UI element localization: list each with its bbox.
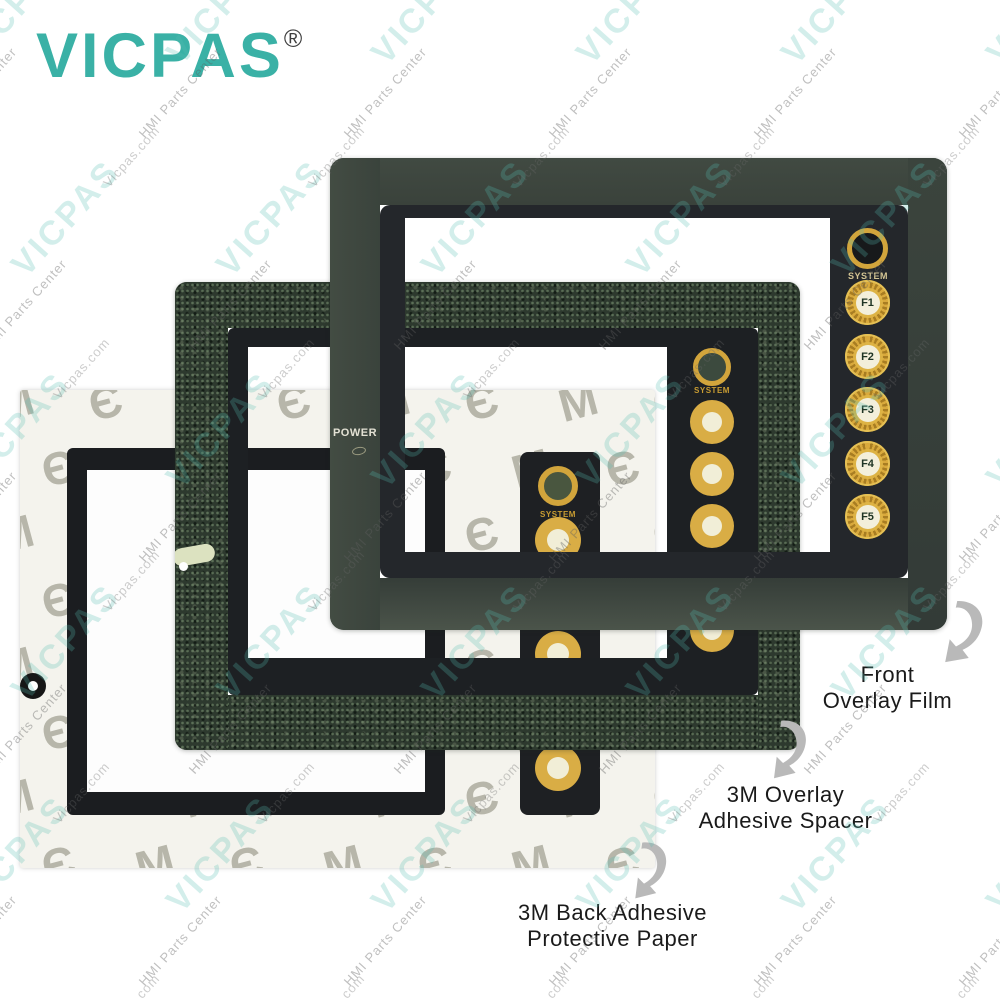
front-frame-right bbox=[908, 158, 947, 630]
watermark-vicpas: VICPAS bbox=[979, 365, 1000, 497]
label-adhesive-spacer: 3M Overlay Adhesive Spacer bbox=[683, 782, 888, 834]
back-paper-key-circle bbox=[535, 745, 581, 791]
function-key-label: F1 bbox=[856, 291, 880, 315]
function-key-label: F4 bbox=[856, 452, 880, 476]
label-front-overlay-film: Front Overlay Film bbox=[790, 662, 985, 714]
liner-glyph: Є bbox=[647, 768, 655, 829]
watermark-vicpas: VICPAS bbox=[209, 153, 333, 285]
label-line: Adhesive Spacer bbox=[683, 808, 888, 834]
watermark-parts-center: HMI Parts Center bbox=[751, 892, 840, 989]
spacer-frame-left bbox=[175, 282, 228, 750]
liner-glyph: M bbox=[20, 390, 40, 433]
callout-arrow-icon bbox=[926, 596, 989, 668]
power-led-hole bbox=[179, 562, 188, 571]
label-line: 3M Back Adhesive bbox=[500, 900, 725, 926]
liner-glyph: Є bbox=[36, 834, 82, 868]
watermark-vicpas: VICPAS bbox=[979, 789, 1000, 921]
front-frame-bottom bbox=[330, 578, 947, 630]
watermark-vicpas: VICPAS bbox=[979, 0, 1000, 72]
key-circle-core bbox=[547, 757, 569, 779]
watermark-parts-center: HMI Parts Center bbox=[546, 44, 635, 141]
function-key-label: F2 bbox=[856, 345, 880, 369]
front-overlay-film: POWER SYSTEM F1F2F3F4F5 bbox=[330, 158, 947, 630]
label-protective-paper: 3M Back Adhesive Protective Paper bbox=[500, 900, 725, 952]
watermark-parts-center: HMI Parts Center bbox=[956, 44, 1000, 141]
function-key-f4: F4 bbox=[845, 441, 890, 486]
watermark-site: Vicpas.com bbox=[715, 971, 778, 1000]
liner-glyph: M bbox=[506, 833, 557, 868]
liner-glyph: M bbox=[130, 833, 181, 868]
watermark-parts-center: HMI Parts Center bbox=[0, 256, 70, 353]
watermark-site: Vicpas.com bbox=[100, 123, 163, 190]
watermark-parts-center: HMI Parts Center bbox=[0, 468, 20, 565]
watermark-vicpas: VICPAS bbox=[4, 153, 128, 285]
front-frame-top bbox=[330, 158, 947, 205]
watermark-parts-center: HMI Parts Center bbox=[956, 468, 1000, 565]
watermark-parts-center: HMI Parts Center bbox=[0, 44, 20, 141]
watermark-parts-center: HMI Parts Center bbox=[0, 892, 20, 989]
watermark-vicpas: VICPAS bbox=[774, 0, 898, 72]
watermark-parts-center: HMI Parts Center bbox=[751, 44, 840, 141]
watermark-parts-center: HMI Parts Center bbox=[956, 892, 1000, 989]
function-key-f1: F1 bbox=[845, 280, 890, 325]
liner-glyph: M bbox=[20, 767, 40, 829]
watermark-site: Vicpas.com bbox=[305, 971, 368, 1000]
front-frame-left bbox=[330, 158, 380, 630]
registered-trademark-icon: ® bbox=[284, 25, 302, 53]
function-key-label: F3 bbox=[856, 398, 880, 422]
watermark-site: Vicpas.com bbox=[920, 971, 983, 1000]
label-line: Front bbox=[790, 662, 985, 688]
function-key-f5: F5 bbox=[845, 494, 890, 539]
watermark-parts-center: HMI Parts Center bbox=[341, 892, 430, 989]
callout-arrow-icon bbox=[755, 718, 811, 781]
liner-glyph: M bbox=[20, 503, 40, 565]
power-label: POWER bbox=[330, 427, 380, 439]
watermark-site: Vicpas.com bbox=[100, 971, 163, 1000]
liner-glyph: Є bbox=[412, 834, 458, 868]
vicpas-logo: VICPAS® bbox=[36, 20, 302, 92]
watermark-vicpas: VICPAS bbox=[569, 0, 693, 72]
paper-mounting-hole bbox=[20, 673, 46, 699]
system-key-ring bbox=[847, 228, 888, 269]
function-key-label: F5 bbox=[856, 505, 880, 529]
label-line: Protective Paper bbox=[500, 926, 725, 952]
watermark-vicpas: VICPAS bbox=[364, 0, 488, 72]
label-line: Overlay Film bbox=[790, 688, 985, 714]
liner-glyph: Є bbox=[459, 768, 505, 829]
liner-glyph: M bbox=[318, 833, 369, 868]
callout-arrow-icon bbox=[616, 840, 672, 901]
vicpas-logo-text: VICPAS bbox=[36, 21, 284, 91]
function-key-f2: F2 bbox=[845, 334, 890, 379]
spacer-frame-bottom bbox=[175, 695, 800, 750]
front-window-bezel bbox=[380, 205, 908, 578]
liner-glyph: Є bbox=[224, 834, 270, 868]
watermark-site: Vicpas.com bbox=[510, 971, 573, 1000]
watermark-parts-center: HMI Parts Center bbox=[136, 892, 225, 989]
label-line: 3M Overlay bbox=[683, 782, 888, 808]
watermark-parts-center: HMI Parts Center bbox=[341, 44, 430, 141]
product-diagram: VICPAS® MЄMЄMЄMЄЄMЄMЄMЄMMЄMЄMЄMЄЄMЄMЄMЄM… bbox=[0, 0, 1000, 1000]
liner-glyph: Є bbox=[83, 390, 129, 432]
function-key-f3: F3 bbox=[845, 387, 890, 432]
